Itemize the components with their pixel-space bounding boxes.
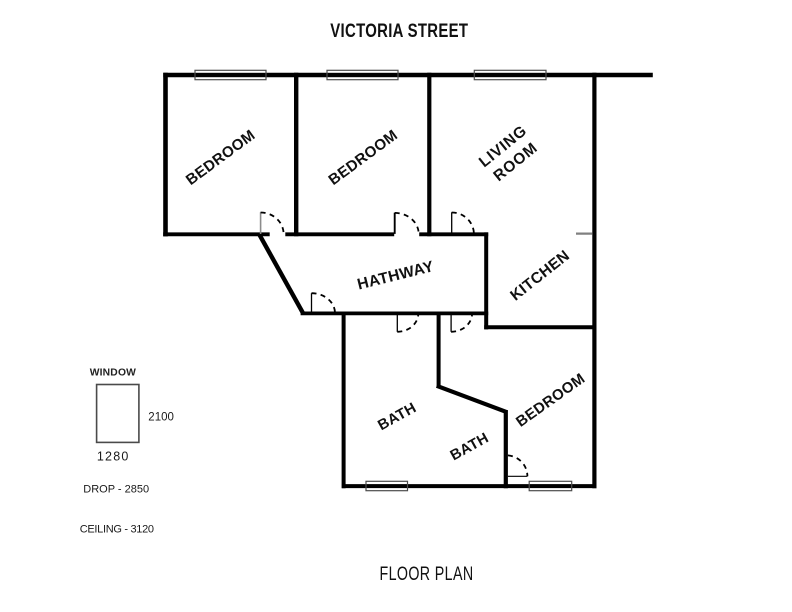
svg-text:1280: 1280	[97, 449, 130, 463]
svg-text:CEILING - 3120: CEILING - 3120	[80, 524, 154, 536]
svg-text:WINDOW: WINDOW	[90, 367, 136, 378]
svg-text:FLOOR PLAN: FLOOR PLAN	[380, 563, 474, 584]
svg-text:2100: 2100	[148, 412, 174, 424]
svg-text:DROP - 2850: DROP - 2850	[83, 484, 149, 496]
svg-text:VICTORIA STREET: VICTORIA STREET	[330, 19, 468, 41]
